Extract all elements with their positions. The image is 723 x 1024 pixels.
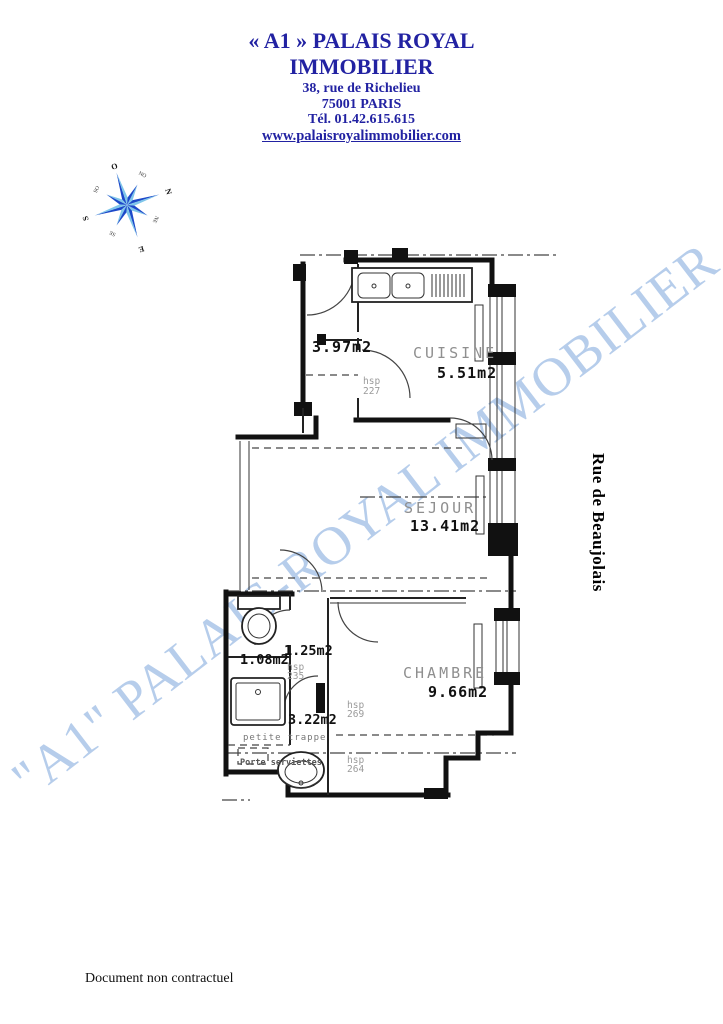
- hsp-264-value: 264: [347, 764, 364, 775]
- window-glazing-mid: [497, 365, 502, 458]
- chambre-area-label: 9.66m2: [428, 683, 488, 701]
- toilet-fixture: [238, 596, 280, 644]
- compass-ne-label: NE: [150, 215, 159, 225]
- facade-pillar: [494, 608, 520, 621]
- window-bay-notch: [456, 424, 486, 438]
- kitchen-sink-fixture: [352, 268, 472, 302]
- chambre-name-label: CHAMBRE: [403, 664, 487, 682]
- door-arc-chambre: [338, 602, 378, 642]
- hsp-235-value: 235: [287, 671, 304, 682]
- window-glazing-cuisine: [497, 297, 502, 352]
- sejour-area-label: 13.41m2: [410, 517, 480, 535]
- shower-area-label: 3.22m2: [288, 712, 337, 728]
- wall-block: [293, 264, 306, 281]
- wall-sejour-top-left: [238, 418, 316, 437]
- window-glazing-chambre: [503, 621, 507, 672]
- floor-plan: O N E S NO NE SE SO: [0, 0, 723, 1024]
- compass-north-label: N: [163, 187, 173, 195]
- compass-east-label: E: [137, 244, 145, 254]
- hsp-227-value: 227: [363, 386, 380, 397]
- wall-bottom: [226, 772, 448, 795]
- facade-pillar: [488, 284, 516, 297]
- wall-steps-bottom-right: [446, 700, 511, 795]
- compass-nw-label: NO: [137, 171, 147, 180]
- cuisine-area-label: 5.51m2: [437, 364, 497, 382]
- compass-rose-icon: O N E S NO NE SE SO: [67, 147, 188, 268]
- compass-west-label: O: [110, 161, 119, 171]
- wall-stub-shower: [316, 683, 325, 713]
- hsp-269-value: 269: [347, 709, 364, 720]
- hall-area-label: 1.25m2: [284, 643, 333, 659]
- sejour-name-label: SEJOUR: [404, 499, 476, 517]
- facade-pillar: [488, 523, 518, 556]
- compass-se-label: SE: [108, 229, 117, 238]
- document-page: « A1 » PALAIS ROYAL IMMOBILIER 38, rue d…: [0, 0, 723, 1024]
- shower-tray-fixture: [231, 678, 285, 725]
- footer-disclaimer: Document non contractuel: [85, 971, 234, 987]
- entry-area-label: 3.97m2: [312, 338, 372, 356]
- compass-sw-label: SO: [93, 185, 102, 194]
- street-name-label: Rue de Beaujolais: [588, 453, 608, 592]
- wc-area-label: 1.08m2: [240, 652, 289, 668]
- compass-south-label: S: [80, 214, 90, 222]
- trappe-note-label: petite trappe: [243, 733, 326, 743]
- serviettes-note-label: Porte serviettes: [240, 757, 322, 768]
- window-glazing-sejour: [497, 471, 502, 523]
- door-arc-sejour-hall: [280, 550, 322, 592]
- cuisine-name-label: CUISINE: [413, 344, 497, 362]
- door-arc-entry: [307, 267, 355, 315]
- wall-block: [392, 248, 408, 261]
- facade-pillar: [494, 672, 520, 685]
- wall-block: [344, 250, 358, 264]
